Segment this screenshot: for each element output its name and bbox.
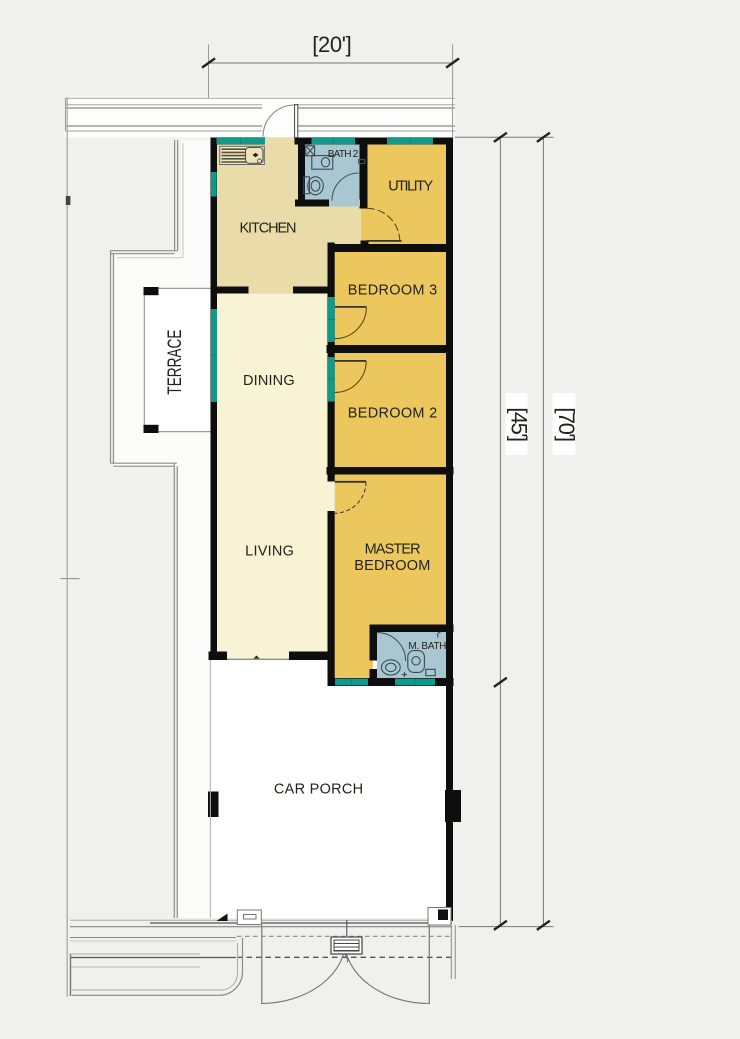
svg-text:BATH 2: BATH 2	[328, 149, 359, 160]
svg-text:KITCHEN: KITCHEN	[240, 220, 297, 236]
svg-text:CAR PORCH: CAR PORCH	[274, 782, 363, 798]
svg-text:DINING: DINING	[243, 373, 295, 389]
svg-text:TERRACE: TERRACE	[164, 330, 186, 395]
svg-text:MASTER: MASTER	[365, 541, 421, 557]
svg-text:[70']: [70']	[554, 407, 579, 442]
svg-text:BEDROOM 2: BEDROOM 2	[348, 406, 437, 422]
svg-text:[20']: [20']	[312, 32, 352, 57]
svg-text:BEDROOM: BEDROOM	[354, 558, 430, 574]
svg-text:UTILITY: UTILITY	[388, 179, 433, 195]
svg-text:LIVING: LIVING	[245, 544, 294, 560]
svg-text:[45']: [45']	[506, 407, 531, 442]
svg-text:M. BATH: M. BATH	[408, 641, 446, 652]
svg-text:BEDROOM 3: BEDROOM 3	[348, 282, 437, 298]
